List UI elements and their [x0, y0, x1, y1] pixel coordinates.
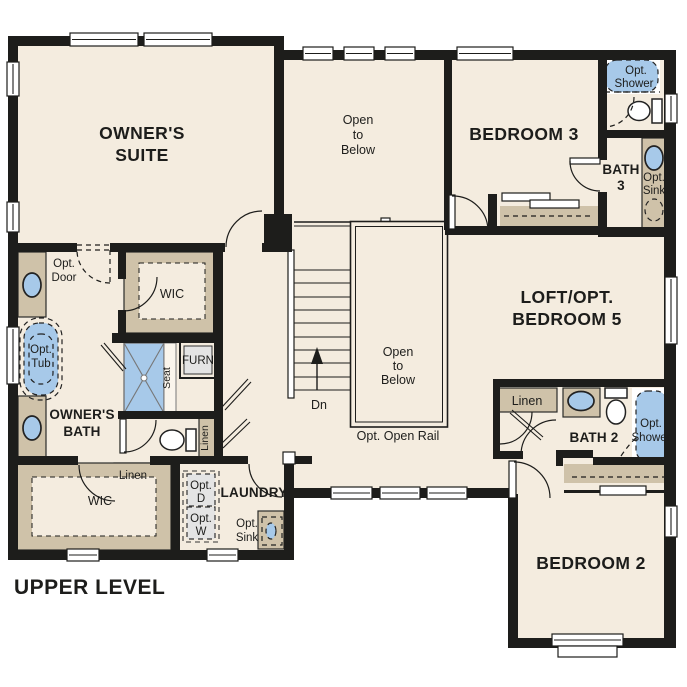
label-opt-sink-bath3: Opt. [643, 172, 665, 184]
label-linen-wic: Linen [119, 470, 147, 482]
svg-text:BEDROOM 5: BEDROOM 5 [512, 309, 622, 329]
svg-text:Shower: Shower [632, 432, 671, 444]
svg-text:Sink: Sink [643, 185, 666, 197]
label-opt-door: Opt. [53, 258, 75, 270]
sink [23, 273, 41, 297]
svg-text:Tub: Tub [31, 358, 50, 370]
window [7, 202, 19, 232]
svg-text:BATH: BATH [63, 424, 100, 439]
stairwell-open-rail [351, 222, 448, 428]
window [283, 452, 295, 464]
svg-text:Sink: Sink [236, 532, 259, 544]
page-title: UPPER LEVEL [14, 576, 165, 599]
room-label-loft: LOFT/OPT. [520, 287, 613, 307]
window [144, 33, 212, 46]
label-furnace: FURN [182, 355, 214, 367]
window [344, 47, 374, 60]
window [385, 47, 415, 60]
window [70, 33, 138, 46]
window [7, 62, 19, 96]
svg-text:D: D [197, 493, 205, 505]
svg-text:Door: Door [52, 272, 77, 284]
sink [568, 392, 594, 411]
floor-plan-drawing: OWNER'S SUITE Open to Below BEDROOM 3 Op… [0, 0, 687, 687]
window [207, 549, 238, 561]
room-label-owners-wic: WIC [160, 287, 184, 301]
room-label-owners-bath: OWNER'S [49, 407, 114, 422]
window [427, 487, 467, 499]
label-open-to-below-center: Open [383, 345, 414, 359]
room-label-owners-suite: OWNER'S [99, 123, 185, 143]
room-label-bath3: BATH [602, 162, 639, 177]
toilet [605, 388, 627, 424]
bay-window [552, 634, 623, 657]
svg-text:W: W [196, 526, 207, 538]
room-label-bedroom2: BEDROOM 2 [536, 553, 646, 573]
window [665, 94, 677, 123]
room-label-lower-wic: WIC [88, 494, 112, 508]
window [331, 487, 372, 499]
window [303, 47, 333, 60]
label-open-to-below-top: Open [343, 113, 374, 127]
label-opt-open-rail: Opt. Open Rail [357, 429, 440, 443]
svg-text:SUITE: SUITE [115, 145, 169, 165]
label-opt-dryer: Opt. [190, 480, 212, 492]
toilet [628, 99, 662, 123]
room-label-laundry: LAUNDRY [221, 485, 288, 500]
label-opt-shower-bath3: Opt. [625, 65, 647, 77]
stair-rail-left [288, 250, 294, 398]
svg-text:Below: Below [341, 143, 376, 157]
window [380, 487, 420, 499]
label-linen-hall: Linen [199, 425, 211, 451]
label-opt-shower-bath2: Opt. [640, 418, 662, 430]
svg-text:Below: Below [381, 373, 416, 387]
svg-text:to: to [393, 359, 403, 373]
label-down: Dn [311, 398, 327, 412]
bedroom2-closet-shelf [564, 464, 676, 483]
sink [645, 146, 663, 170]
bypass-door [600, 486, 646, 495]
svg-text:Shower: Shower [615, 78, 654, 90]
floor-plan-page: OWNER'S SUITE Open to Below BEDROOM 3 Op… [0, 0, 687, 687]
svg-text:to: to [353, 128, 363, 142]
room-label-bedroom3: BEDROOM 3 [469, 124, 579, 144]
window [457, 47, 513, 60]
toilet [160, 429, 196, 451]
window [665, 506, 677, 537]
label-opt-washer: Opt. [190, 513, 212, 525]
svg-text:3: 3 [617, 178, 625, 193]
window [7, 327, 19, 384]
label-linen-bath2: Linen [512, 394, 543, 408]
room-label-bath2: BATH 2 [570, 430, 619, 445]
bypass-door [530, 200, 579, 208]
label-opt-tub: Opt. [30, 344, 52, 356]
sink [23, 416, 41, 440]
label-opt-sink-laundry: Opt. [236, 518, 258, 530]
label-seat: Seat [161, 367, 173, 389]
window [665, 277, 677, 344]
window [67, 549, 99, 561]
